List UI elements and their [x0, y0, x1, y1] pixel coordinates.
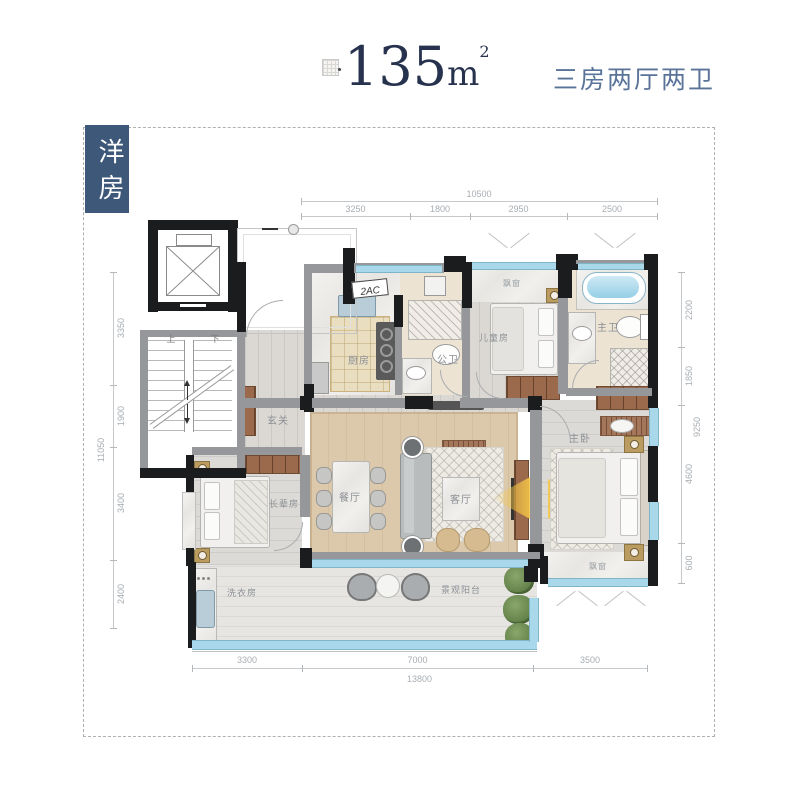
wall-segment: [245, 398, 405, 408]
wall-segment: [140, 330, 148, 478]
product-tag: 洋房: [85, 125, 129, 213]
wall-segment: [188, 562, 196, 648]
bay-window-elders: [182, 492, 196, 550]
wall-segment: [648, 446, 658, 502]
dim-line: [192, 668, 647, 669]
wall-segment: [394, 295, 403, 327]
dim-top-total: 10500: [301, 189, 657, 199]
dim-top-segment-0: 3250: [301, 204, 410, 214]
wall-segment: [192, 447, 302, 455]
label-bay-window-bottom: 飘窗: [576, 561, 620, 572]
dim-line: [113, 272, 114, 628]
wall-segment: [524, 566, 538, 582]
master-bay-glass: [548, 578, 648, 587]
label-master-bath: 主卫: [588, 319, 628, 334]
dim-right-total: 9250: [692, 417, 702, 437]
dim-line: [301, 201, 657, 202]
wall-segment: [300, 396, 312, 410]
column-icon: [288, 224, 299, 235]
dim-tick: [110, 628, 117, 629]
wall-segment: [148, 220, 158, 312]
elevator-counterweight: [176, 234, 212, 246]
dim-right-segment-3: 600: [684, 555, 694, 570]
stool: [436, 528, 460, 552]
dim-tick: [110, 272, 117, 273]
label-foyer: 玄关: [256, 412, 300, 427]
seal-icon: [322, 59, 339, 76]
dining-chair: [370, 490, 386, 507]
dim-tick: [192, 665, 193, 672]
wall-segment: [300, 548, 312, 568]
label-bay-window-top: 飘窗: [490, 278, 534, 289]
dining-chair: [370, 467, 386, 484]
dim-top-segment-3: 2500: [567, 204, 657, 214]
lamp-icon: [630, 548, 639, 557]
wall-segment: [648, 268, 658, 408]
dim-tick: [301, 213, 302, 220]
layout-subtitle: 三房两厅两卫: [553, 60, 715, 96]
dim-left-segment-3: 2400: [116, 584, 126, 604]
dim-bottom-segment-0: 3300: [192, 655, 302, 665]
balcony-railing-glass: [192, 640, 537, 650]
dim-tick: [533, 665, 534, 672]
wall-segment: [462, 262, 472, 308]
dim-tick: [110, 385, 117, 386]
label-stairs-down: 下: [208, 332, 222, 345]
elders-pillow: [204, 512, 220, 540]
balcony-outer-line: [192, 651, 537, 652]
dim-tick: [647, 665, 648, 672]
area-sup: 2: [479, 42, 489, 61]
dim-bottom-segment-2: 3500: [533, 655, 647, 665]
wall-segment: [186, 455, 194, 492]
dresser-stool: [610, 419, 634, 433]
dim-tick: [657, 198, 658, 205]
guest-bath-sink: [406, 366, 426, 380]
master-bath-window: [578, 263, 648, 270]
laundry-dot-icon: [202, 577, 205, 580]
dim-tick: [110, 447, 117, 448]
wall-segment: [558, 270, 572, 298]
children-pillow: [538, 308, 554, 336]
stair-arrow-stem: [187, 386, 188, 400]
dim-right-segment-1: 1850: [684, 366, 694, 386]
label-dining: 餐厅: [332, 489, 368, 504]
side-table: [402, 437, 423, 458]
dim-line: [301, 216, 657, 217]
ac-unit-label: 2AC: [360, 285, 380, 298]
lamp-icon: [630, 440, 639, 449]
dim-tick: [110, 560, 117, 561]
dining-chair: [370, 513, 386, 530]
dining-chair: [316, 490, 332, 507]
dim-left-segment-2: 3400: [116, 493, 126, 513]
label-children-room: 儿童房: [464, 331, 524, 344]
balcony-side-glass: [529, 598, 539, 642]
dim-left-total: 11050: [96, 438, 106, 462]
dim-right-segment-0: 2200: [684, 300, 694, 320]
stool: [464, 528, 490, 552]
floorplan-page: 洋房 135m2 三房两厅两卫: [0, 0, 800, 800]
wall-segment: [304, 272, 312, 386]
area-unit: m: [447, 54, 479, 94]
area-value: 135: [344, 35, 447, 98]
wall-segment: [566, 388, 652, 396]
stove-burner-icon: [380, 328, 393, 341]
dim-tick: [657, 213, 658, 220]
wall-segment: [405, 396, 433, 409]
elevator-door: [180, 304, 206, 307]
label-laundry: 洗衣房: [216, 586, 268, 599]
dining-chair: [316, 467, 332, 484]
area-title: 135m2: [344, 40, 490, 94]
label-living: 客厅: [440, 491, 482, 506]
corridor-mark: [262, 228, 278, 230]
master-pillow: [620, 458, 638, 496]
wall-segment: [648, 556, 658, 584]
master-pillow: [620, 498, 638, 536]
children-bay-window: [466, 262, 556, 270]
wall-segment: [148, 220, 238, 230]
master-window: [649, 502, 659, 540]
dim-tick: [470, 213, 471, 220]
elders-bed-blanket: [234, 480, 268, 544]
dim-bottom-total: 13800: [192, 674, 647, 684]
wall-segment: [140, 330, 246, 337]
sofa-cushions: [404, 457, 414, 533]
dim-left-segment-0: 3350: [116, 318, 126, 338]
dining-chair: [316, 513, 332, 530]
laundry-dot-icon: [207, 577, 210, 580]
dim-tick: [678, 583, 685, 584]
label-balcony: 景观阳台: [428, 583, 494, 596]
dim-tick: [567, 213, 568, 220]
wall-segment: [237, 262, 246, 332]
laundry-dot-icon: [197, 577, 200, 580]
dim-tick: [678, 543, 685, 544]
washing-machine: [196, 590, 215, 628]
label-guest-bath: 公卫: [428, 351, 468, 366]
master-bed-blanket: [558, 458, 606, 538]
elevator-cab-icon: [166, 246, 220, 296]
dim-top-segment-2: 2950: [470, 204, 567, 214]
label-elders-room: 长辈房: [256, 497, 312, 510]
dim-right-segment-2: 4600: [684, 464, 694, 484]
dim-left-segment-1: 1900: [116, 406, 126, 426]
wall-segment: [556, 254, 578, 270]
wall-segment: [395, 327, 402, 395]
seal-dot-icon: [338, 68, 341, 71]
dim-tick: [678, 405, 685, 406]
dim-line: [681, 272, 682, 583]
dim-tick: [302, 665, 303, 672]
label-kitchen: 厨房: [330, 352, 388, 367]
guest-bath-shower: [408, 300, 462, 340]
master-nightstand: [624, 544, 644, 561]
stair-down-arrow-icon: [184, 418, 190, 424]
balcony-chair: [347, 573, 377, 601]
guest-bath-washer: [424, 276, 446, 296]
elders-pillow: [204, 482, 220, 510]
elders-nightstand: [194, 548, 210, 563]
wall-segment: [306, 552, 540, 559]
master-bathtub-water: [587, 276, 639, 298]
lamp-icon: [198, 551, 207, 560]
dim-tick: [678, 347, 685, 348]
balcony-table: [376, 574, 400, 598]
children-pillow: [538, 340, 554, 368]
wall-segment: [540, 556, 548, 584]
stair-arrow-stem: [187, 404, 188, 418]
wall-segment: [237, 332, 245, 478]
wall-segment: [558, 298, 568, 394]
elders-wardrobe: [245, 455, 304, 474]
label-master-bedroom: 主卧: [558, 430, 602, 445]
dim-tick: [678, 272, 685, 273]
kitchen-window: [356, 265, 442, 273]
label-stairs-up: 上: [164, 332, 178, 345]
balcony-sliding-door: [312, 559, 528, 568]
dim-bottom-segment-1: 7000: [302, 655, 533, 665]
master-nightstand: [624, 436, 644, 453]
dim-tick: [410, 213, 411, 220]
balcony-chair: [401, 573, 430, 601]
master-window: [649, 408, 659, 446]
dim-top-segment-1: 1800: [410, 204, 470, 214]
